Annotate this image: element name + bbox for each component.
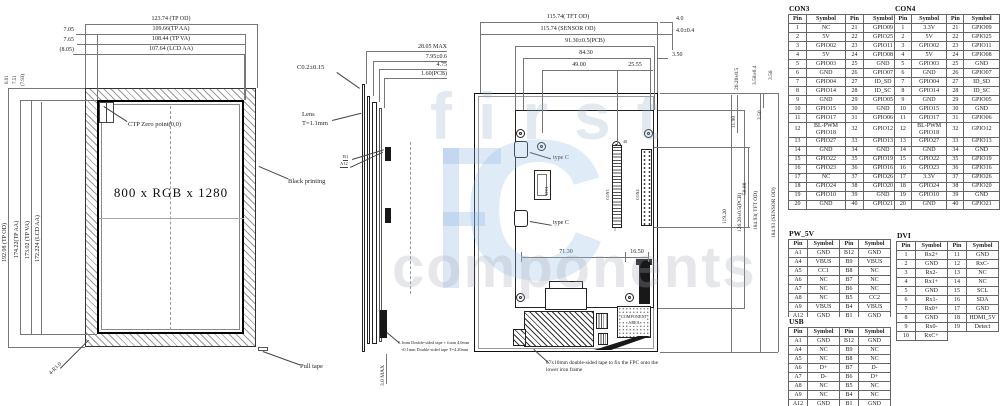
pin-cell: 5V (911, 33, 947, 42)
pin-cell: GPIO04 (807, 78, 846, 87)
pin-cell: 40 (846, 200, 864, 209)
pin-cell: NC (967, 278, 999, 287)
column-header: Pin (846, 15, 864, 24)
table-row: 16GPIO2336GPIO16 (789, 164, 903, 173)
pin-cell: GPIO19 (964, 155, 1000, 164)
pin-cell: NC (808, 382, 840, 391)
pin-cell: 11 (789, 114, 807, 123)
dimension-line (245, 34, 246, 100)
dimension-line (98, 44, 245, 45)
pin-cell: 3 (895, 42, 912, 51)
table-row: A5NCB8NC (789, 355, 891, 364)
pin-cell: GND (967, 305, 999, 314)
pin-cell: 11 (895, 114, 912, 123)
pin-cell: GPIO12 (964, 123, 1000, 138)
pin-cell: GPIO13 (964, 137, 1000, 146)
dvi-title: DVI (897, 231, 999, 240)
pin-cell: NC (808, 355, 840, 364)
mounting-hole (516, 293, 525, 302)
pin-cell: A6 (789, 364, 808, 373)
dimension-line (654, 227, 750, 228)
dimension-line (379, 69, 447, 70)
pin-cell: GND (807, 69, 846, 78)
table-row: 45V24GPIO08 (895, 51, 1000, 60)
dim-tp-aa: 109.66(TP AA) (152, 26, 189, 33)
pin-cell: CC1 (808, 267, 840, 276)
table-row: 15GPIO2235GPIO19 (895, 155, 1000, 164)
pin-cell: GPIO09 (964, 24, 1000, 33)
shape: PinSymbolPinSymbol1Rx2+11GND2GND12RxC-3R… (897, 242, 999, 341)
pin-cell: 5 (789, 60, 807, 69)
ctp-zero-label: CTP Zero point(0,0) (128, 121, 181, 128)
center-horizontal-line (99, 218, 244, 219)
pull-tape-label: Pull tape (300, 363, 323, 370)
pin-cell: HDMI_5V (967, 314, 999, 323)
pin-cell: RxC+ (916, 332, 948, 341)
side-view-lens (362, 84, 365, 352)
table-header-row: PinSymbolPinSymbol (897, 242, 999, 251)
table-row: 5GND15SCL (897, 287, 999, 296)
rot-dim-11920: 119.20 (722, 209, 728, 224)
dvi-pinout-table: PinSymbolPinSymbol1Rx2+11GND2GND12RxC-3R… (896, 241, 999, 341)
table-row: 12BL-PWM GPIO1832GPIO12 (789, 123, 903, 138)
pin-cell: GND (859, 337, 891, 346)
pin-cell: GND (859, 400, 891, 406)
table-row: 14GND34GND (789, 146, 903, 155)
pull-tape-leader (263, 351, 301, 366)
pin-cell: D- (859, 364, 891, 373)
pin-cell: GPIO10 (807, 191, 846, 200)
pin-cell: 38 (947, 182, 964, 191)
pin-cell: NC (859, 382, 891, 391)
table-row: 9GND29GPIO05 (895, 96, 1000, 105)
dimension-line (76, 34, 97, 35)
pin-cell: 5V (807, 33, 846, 42)
pin-cell: SCL (967, 287, 999, 296)
column-header: Pin (789, 15, 807, 24)
pin-cell: GPIO07 (964, 69, 1000, 78)
pin-cell: RxC- (967, 260, 999, 269)
pin-cell: ID_SD (964, 78, 1000, 87)
pin-cell: GND (911, 96, 947, 105)
column-header: Pin (948, 242, 967, 251)
pin-cell: GND (964, 146, 1000, 155)
shape (628, 296, 631, 299)
dimension-line (8, 88, 85, 89)
pin-cell: 12 (789, 123, 807, 138)
pin-cell: 32 (846, 123, 864, 138)
pin-cell: 25 (947, 60, 964, 69)
pin-cell: 3.3V (911, 24, 947, 33)
table-row: 3Rx2-13NC (897, 269, 999, 278)
pin-cell: A12 (789, 400, 808, 406)
ffc-cable-cap (636, 259, 652, 265)
pin-cell: B9 (840, 346, 859, 355)
pin-cell: GND (964, 191, 1000, 200)
pin-cell: 9 (789, 96, 807, 105)
rot-dim-tft-h: 184.93( TFT OD) (753, 191, 759, 230)
dimension-line (660, 352, 778, 353)
dimension-line (523, 58, 524, 110)
pin-cell: 36 (947, 164, 964, 173)
dimension-line (521, 257, 625, 258)
table-row: 7GPIO0427ID_SD (895, 78, 1000, 87)
pin-cell: GND (916, 314, 948, 323)
pin-cell: VBUS (859, 303, 891, 312)
column-header: Symbol (808, 240, 840, 249)
dimension-line (625, 257, 648, 258)
dimension-line (744, 110, 745, 309)
pin-cell: GPIO03 (807, 60, 846, 69)
pin-cell: GPIO11 (964, 42, 1000, 51)
table-row: 11GPIO1731GPIO06 (789, 114, 903, 123)
dimension-line (648, 252, 649, 262)
pin-cell: 8 (895, 87, 912, 96)
pin-cell: 4 (895, 51, 912, 60)
con3-pinout-table: PinSymbolPinSymbol1NC21GPIO0925V22GPIO25… (788, 14, 903, 210)
pin-cell: 18 (948, 314, 967, 323)
table-row: 20GND40GPIO21 (789, 200, 903, 209)
pin-cell: NC (807, 173, 846, 182)
side-dim-475: 4.75 (397, 62, 447, 69)
pin-cell: 17 (789, 173, 807, 182)
dimension-line (515, 46, 655, 47)
pin-cell: B7 (840, 364, 859, 373)
pin-cell: Rx2+ (916, 251, 948, 260)
dimension-line (542, 70, 543, 133)
pin-header-con4 (641, 149, 652, 226)
pin-cell: GND (916, 260, 948, 269)
side-tape-stack (380, 310, 387, 338)
column-header: Symbol (808, 328, 840, 337)
pin-cell: GND (808, 337, 840, 346)
pin-cell: 8 (897, 314, 916, 323)
dim-offset-765: 7.65 (48, 37, 74, 44)
dimension-line (660, 93, 778, 94)
table-row: 25V22GPIO25 (789, 33, 903, 42)
pin-cell: Rx2- (916, 269, 948, 278)
column-header: Symbol (859, 240, 891, 249)
pin-cell: 18 (789, 182, 807, 191)
back-tape-note-2: lower iron frame (546, 368, 582, 374)
dimension-line (386, 354, 387, 384)
pin-cell: NC (807, 24, 846, 33)
shape (519, 296, 522, 299)
dimension-line (20, 100, 21, 335)
pin-cell: B5 (840, 294, 859, 303)
lcd-panel-outline-drawing: C first components 800 x RGB x 1280 123.… (0, 0, 1000, 406)
pin-cell: GND (911, 200, 947, 209)
pin-cell: 23 (846, 42, 864, 51)
pin-cell: GPIO10 (911, 191, 947, 200)
dimension-line (20, 334, 97, 335)
pin-cell: 7 (897, 305, 916, 314)
pin-cell: GPIO16 (964, 164, 1000, 173)
pin-cell: 30 (846, 105, 864, 114)
pin-cell: 18 (895, 182, 912, 191)
table-row: 8GND18HDMI_5V (897, 314, 999, 323)
dimension-line (257, 24, 258, 88)
side-bottom-max: 3.0 MAX (380, 365, 386, 386)
dim-voffset-751: 7.51 (13, 75, 19, 84)
shape (519, 132, 522, 135)
pin-cell: GPIO05 (964, 96, 1000, 105)
pin-cell: GPIO04 (911, 78, 947, 87)
pin-cell: 26 (947, 69, 964, 78)
pin-cell: 12 (948, 260, 967, 269)
side-tape-note-2: +0.1mm Double-sided tape T=4.20mm (401, 348, 468, 353)
black-printing-leader (259, 166, 289, 179)
pin-cell: NC (808, 276, 840, 285)
pin-cell: D+ (859, 373, 891, 382)
pin-cell: 34 (947, 146, 964, 155)
side-view-pcb (379, 108, 382, 342)
table-row: 11GPIO1731GPIO06 (895, 114, 1000, 123)
pin-cell: 3.3V (911, 173, 947, 182)
bl-connector-tab (545, 288, 587, 310)
side-fold-dashed-line (410, 142, 411, 294)
con3-title: CON3 (789, 4, 903, 13)
table-row: 13.3V21GPIO09 (895, 24, 1000, 33)
dim-pcb-w: 91.30±0.5(PCB) (565, 38, 605, 45)
pin-cell: 21 (947, 24, 964, 33)
type-c-label-1: type C (553, 155, 569, 162)
table-row: 1NC21GPIO09 (789, 24, 903, 33)
rot-dim-sensor-h: 184.93 (SENSOR OD) (771, 187, 777, 238)
dimension-line (658, 58, 668, 59)
pin-cell: GPIO08 (964, 51, 1000, 60)
table-row: A8NCB5CC2 (789, 294, 891, 303)
table-row: 5GPIO0325GND (789, 60, 903, 69)
pin-cell: 30 (947, 105, 964, 114)
pin-cell: GPIO23 (911, 164, 947, 173)
column-header: Pin (840, 328, 859, 337)
rot-dim-2620: 26.20±0.5 (734, 68, 740, 90)
pin-cell: 31 (846, 114, 864, 123)
pin-cell: Detect (967, 323, 999, 332)
pin-cell: 5V (807, 51, 846, 60)
empty-cell (948, 332, 967, 341)
table-row: A5CC1B8NC (789, 267, 891, 276)
pin-cell: B6 (840, 285, 859, 294)
dimension-line (748, 147, 749, 227)
con4-title: CON4 (895, 4, 1000, 13)
pin-cell: GPIO15 (807, 105, 846, 114)
pin-cell: 35 (846, 155, 864, 164)
dimension-line (658, 110, 744, 111)
vdim-tp-va: 173.02 (TP VA) (25, 221, 32, 259)
con3-table-block: CON3 PinSymbolPinSymbol1NC21GPIO0925V22G… (788, 4, 903, 210)
dimension-line (617, 70, 618, 146)
pin-cell: GPIO15 (911, 105, 947, 114)
vdim-tp-aa: 174.22(TP AA) (14, 221, 21, 258)
rot-dim-358a: 3.58±0.4 (752, 65, 758, 85)
table-header-row: PinSymbolPinSymbol (789, 328, 891, 337)
pin-cell: A1 (789, 249, 808, 258)
dim-tft-od: 115.74( TFT OD) (547, 14, 589, 21)
pin-cell: A8 (789, 294, 808, 303)
pin-cell: 24 (947, 51, 964, 60)
pin-cell: 10 (895, 105, 912, 114)
table-row: 18GPIO2438GPIO20 (895, 182, 1000, 191)
table-row: 20GND40GPIO21 (895, 200, 1000, 209)
pin-cell: GPIO14 (807, 87, 846, 96)
pin-cell: 2 (897, 260, 916, 269)
table-row: 3GPIO0223GPIO11 (895, 42, 1000, 51)
side-connector-2 (385, 208, 391, 223)
pw5v-table-block: PW_5V PinSymbolPinSymbolA1GNDB12GNDA4VBU… (788, 229, 891, 321)
rot-dim-1190: 11.90 (731, 116, 737, 128)
table-row: 6GND26GPIO07 (789, 69, 903, 78)
pin-cell: 2 (895, 33, 912, 42)
pin-cell: GPIO27 (807, 137, 846, 146)
pin-cell: GPIO02 (807, 42, 846, 51)
column-header: Pin (789, 240, 808, 249)
table-row: A4NCB9NC (789, 346, 891, 355)
dimension-line (244, 54, 245, 100)
pin-cell: A7 (789, 285, 808, 294)
pin-cell: GPIO21 (964, 200, 1000, 209)
lens-leader (332, 113, 361, 121)
column-header: Pin (895, 15, 912, 24)
pin-cell: GPIO17 (807, 114, 846, 123)
corner-radius-label: 4-R1.0 (48, 361, 63, 376)
table-row: A6D+B7D- (789, 364, 891, 373)
dimension-line (660, 22, 672, 23)
table-row: A7NCB6NC (789, 285, 891, 294)
dimension-line (366, 51, 367, 84)
pin-cell: A7 (789, 373, 808, 382)
pin-cell: A5 (789, 355, 808, 364)
pin-cell: 22 (947, 33, 964, 42)
dimension-line (778, 93, 779, 352)
pin40-label: 40 (623, 140, 627, 144)
pin-cell: GPIO25 (964, 33, 1000, 42)
pin-cell: 1 (897, 251, 916, 260)
pin-cell: 5 (897, 287, 916, 296)
dvi-connector-label: DVI (545, 187, 550, 195)
dimension-line (77, 44, 98, 45)
side-dim-795: 7.95±0.6 (397, 54, 447, 61)
pin-cell: 15 (895, 155, 912, 164)
pin-cell: 39 (947, 191, 964, 200)
pin-cell: 13 (789, 137, 807, 146)
column-header: Symbol (859, 328, 891, 337)
pin1-label: 1 (614, 228, 616, 232)
chamfer-label: C0.2±0.15 (297, 64, 324, 71)
pin-cell: 9 (895, 96, 912, 105)
pin-cell: 35 (947, 155, 964, 164)
dim-4-0-04: 4.0±0.4 (676, 28, 694, 35)
column-header: Symbol (911, 15, 947, 24)
pin-cell: 20 (895, 200, 912, 209)
pin-cell: B9 (840, 258, 859, 267)
pin-cell: 40 (947, 200, 964, 209)
pin-cell: GPIO02 (911, 42, 947, 51)
pin-a12-label: A12 (340, 162, 348, 168)
dimension-line (20, 100, 97, 101)
pin-cell: 3 (897, 269, 916, 278)
pin-cell: GND (807, 146, 846, 155)
table-row: A12GNDB1GND (789, 400, 891, 406)
dimension-line (515, 46, 516, 110)
table-row: A6NCB7NC (789, 276, 891, 285)
table-row: 14GND34GND (895, 146, 1000, 155)
pin-cell: 6 (789, 69, 807, 78)
pin-cell: 8 (789, 87, 807, 96)
pin-cell: NC (808, 346, 840, 355)
pin-cell: NC (808, 285, 840, 294)
dimension-line (658, 308, 744, 309)
pin-cell: 17 (948, 305, 967, 314)
dim-offset-805: (8.05) (44, 47, 74, 54)
pin-cell: 29 (947, 96, 964, 105)
dimension-line (650, 58, 651, 110)
pin-cell: 11 (948, 251, 967, 260)
pin-cell: 7 (895, 78, 912, 87)
table-row: 8GPIO1428ID_SC (895, 87, 1000, 96)
type-c-label-2: type C (553, 220, 569, 227)
pin-cell: 14 (789, 146, 807, 155)
pin-cell: 22 (846, 33, 864, 42)
pin-header-con3 (612, 145, 622, 228)
side-view-frame (367, 96, 370, 344)
pin-cell: GPIO14 (911, 87, 947, 96)
table-row: 1Rx2+11GND (897, 251, 999, 260)
pin-cell: NC (808, 391, 840, 400)
pin-cell: A4 (789, 258, 808, 267)
usb-pinout-table: PinSymbolPinSymbolA1GNDB12GNDA4NCB9NCA5N… (788, 327, 891, 406)
pin-cell: 37 (846, 173, 864, 182)
table-row: 10GPIO1530GND (895, 105, 1000, 114)
panel-resolution-label: 800 x RGB x 1280 (114, 185, 228, 201)
table-row: 19GPIO1039GND (895, 191, 1000, 200)
pin-cell: D- (808, 373, 840, 382)
pin-cell: 4 (897, 278, 916, 287)
pin-cell: 25 (846, 60, 864, 69)
pin-cell: B1 (840, 400, 859, 406)
pin-cell: Rx1+ (916, 278, 948, 287)
table-row: 5GPIO0325GND (895, 60, 1000, 69)
dimension-line (658, 34, 672, 35)
rot-dim-350: 3.50 (757, 110, 763, 120)
pin-cell: A6 (789, 276, 808, 285)
shape (647, 132, 650, 135)
dim-voffset-691: 6.91 (5, 75, 11, 84)
dimension-line (99, 54, 244, 55)
usb-c-connector-1 (514, 141, 528, 158)
table-row: 7GPIO0427ID_SD (789, 78, 903, 87)
dimension-line (617, 70, 653, 71)
pin-cell: CC2 (859, 294, 891, 303)
table-row: 16GPIO2336GPIO16 (895, 164, 1000, 173)
pin-cell: 7 (789, 78, 807, 87)
pin-cell: ID_SC (964, 87, 1000, 96)
side-connector-1 (385, 147, 391, 161)
mounting-hole (516, 129, 525, 138)
pin-cell: 20 (789, 200, 807, 209)
table-row: 25V22GPIO25 (895, 33, 1000, 42)
pcb-outline (515, 110, 654, 308)
pin-cell: 15 (948, 287, 967, 296)
pin-cell: 13 (895, 137, 912, 146)
table-row: 7Rx0+17GND (897, 305, 999, 314)
dimension-line (480, 22, 657, 23)
dimension-line (654, 147, 750, 148)
pin-cell: GPIO06 (964, 114, 1000, 123)
pin-cell: 10 (897, 332, 916, 341)
pin-cell: 16 (895, 164, 912, 173)
